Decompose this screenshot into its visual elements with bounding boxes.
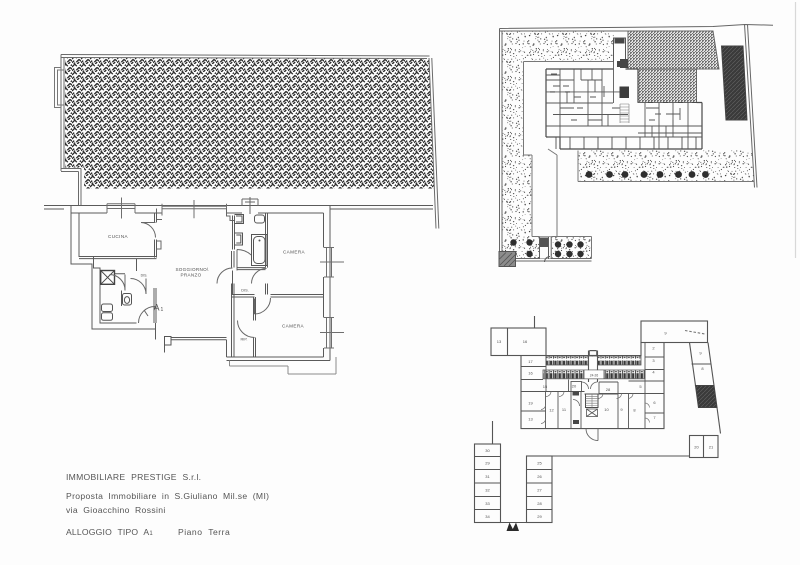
svg-text:A: A — [154, 303, 160, 313]
svg-text:16: 16 — [528, 371, 533, 376]
svg-text:20: 20 — [694, 445, 699, 450]
svg-text:30: 30 — [485, 448, 490, 453]
svg-text:29: 29 — [485, 461, 490, 466]
svg-text:28: 28 — [537, 501, 542, 506]
svg-text:28: 28 — [606, 387, 611, 392]
svg-text:DIS.: DIS. — [141, 273, 148, 277]
svg-text:24-26: 24-26 — [590, 374, 599, 378]
svg-text:15: 15 — [543, 384, 548, 389]
svg-text:SOGGIORNO\: SOGGIORNO\ — [175, 267, 209, 272]
svg-text:29: 29 — [537, 514, 542, 519]
svg-text:RIP.: RIP. — [241, 338, 248, 342]
svg-text:34: 34 — [485, 514, 490, 519]
svg-text:CAMERA: CAMERA — [283, 250, 306, 255]
svg-text:9: 9 — [620, 407, 623, 412]
svg-text:DIS.: DIS. — [241, 289, 248, 293]
svg-text:16: 16 — [523, 339, 528, 344]
svg-text:CUCINA: CUCINA — [108, 234, 129, 239]
svg-text:20: 20 — [572, 384, 577, 389]
svg-text:CAMERA: CAMERA — [282, 324, 305, 329]
svg-text:13: 13 — [497, 339, 502, 344]
svg-text:2: 2 — [652, 346, 655, 351]
svg-text:3: 3 — [652, 358, 655, 363]
svg-text:27: 27 — [537, 488, 542, 493]
svg-text:4: 4 — [652, 370, 655, 375]
svg-text:9: 9 — [699, 351, 702, 356]
svg-text:9: 9 — [664, 331, 667, 336]
svg-text:6: 6 — [653, 400, 656, 405]
svg-text:5: 5 — [639, 384, 642, 389]
svg-text:26: 26 — [537, 474, 542, 479]
svg-text:19: 19 — [528, 401, 533, 406]
svg-text:25: 25 — [537, 461, 542, 466]
svg-text:21: 21 — [709, 445, 714, 450]
svg-text:10: 10 — [604, 407, 609, 412]
svg-text:13: 13 — [528, 417, 533, 422]
svg-text:8: 8 — [701, 366, 704, 371]
svg-text:7: 7 — [653, 415, 656, 420]
svg-text:8: 8 — [633, 408, 636, 413]
svg-text:PRANZO: PRANZO — [181, 273, 202, 278]
svg-text:32: 32 — [485, 488, 490, 493]
svg-text:17: 17 — [528, 359, 533, 364]
svg-text:1: 1 — [161, 307, 164, 313]
svg-text:12: 12 — [549, 408, 554, 413]
svg-text:33: 33 — [485, 501, 490, 506]
svg-text:11: 11 — [562, 407, 567, 412]
svg-text:31: 31 — [485, 474, 490, 479]
